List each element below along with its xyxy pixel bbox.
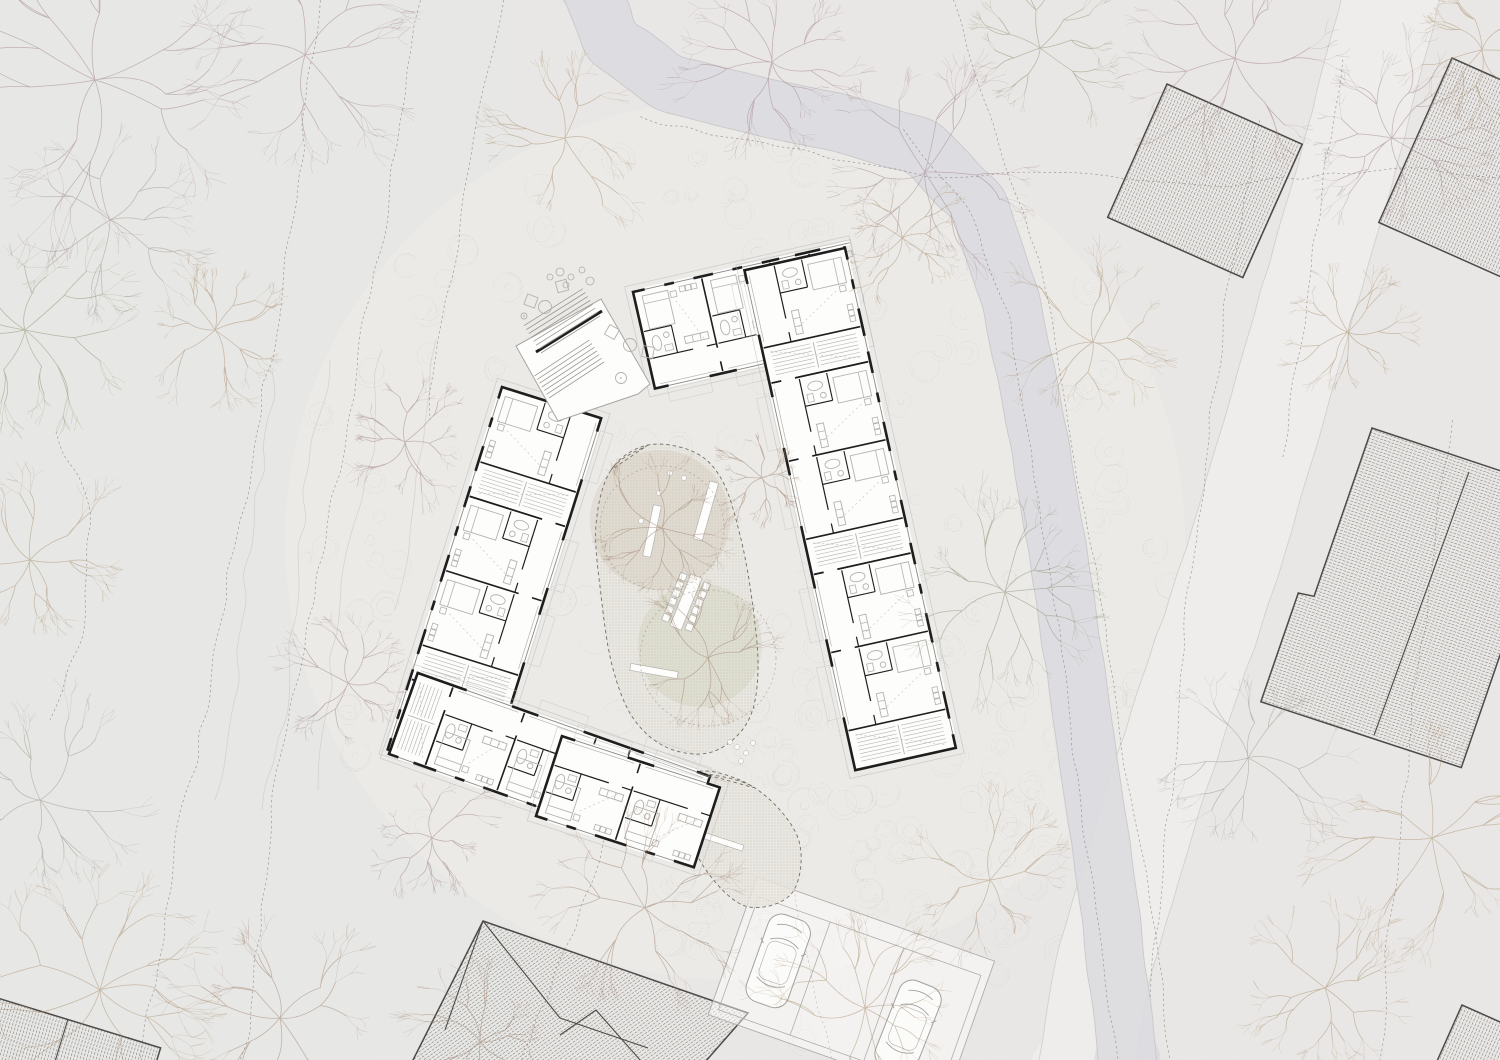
site-plan-canvas [0,0,1500,1060]
site-plan-drawing [0,0,1500,1060]
